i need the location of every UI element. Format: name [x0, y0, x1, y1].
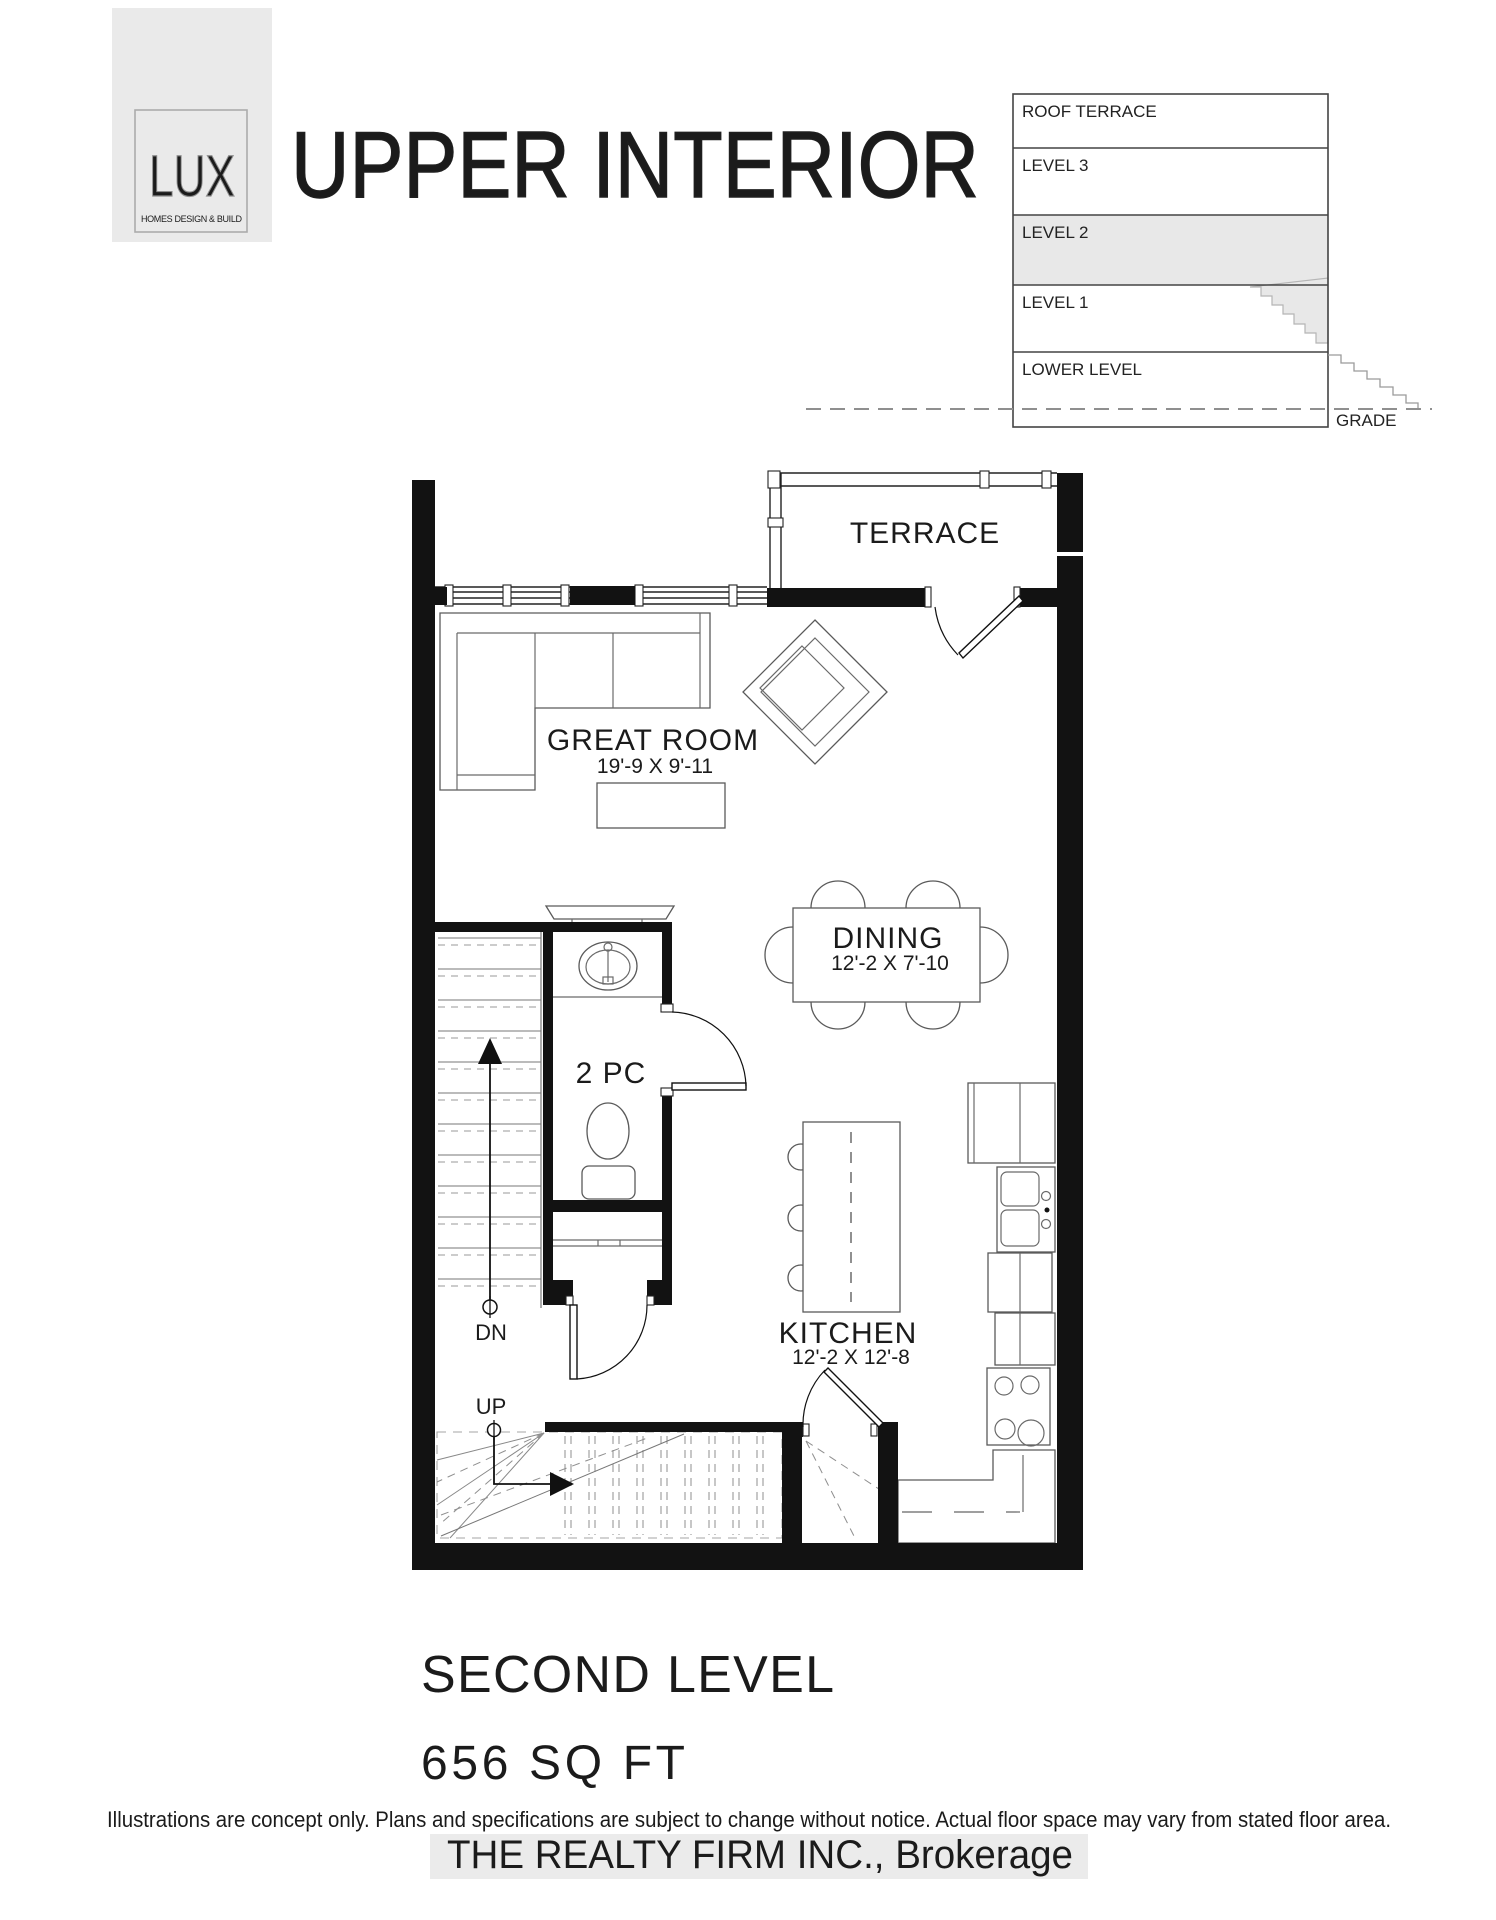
closet-door	[566, 1296, 654, 1379]
kitchen-door	[803, 1368, 883, 1436]
brand-logo: LUX HOMES DESIGN & BUILD	[112, 8, 272, 242]
floorplan-svg: LUX HOMES DESIGN & BUILD UPPER INTERIOR …	[0, 0, 1496, 1920]
logo-text: LUX	[149, 144, 235, 209]
powder-room-label: 2 PC	[576, 1057, 647, 1090]
floor-area: 656 SQ FT	[421, 1737, 685, 1790]
level-3-label: LEVEL 3	[1022, 156, 1088, 175]
disclaimer-text: Illustrations are concept only. Plans an…	[107, 1807, 1391, 1832]
accent-chair	[743, 620, 887, 764]
bathroom-sink	[553, 942, 662, 997]
kitchen-counters	[898, 1083, 1055, 1543]
brokerage-watermark: THE REALTY FIRM INC., Brokerage	[430, 1833, 1088, 1879]
kitchen-dims: 12'-2 X 12'-8	[792, 1346, 910, 1369]
floorplan-page: LUX HOMES DESIGN & BUILD UPPER INTERIOR …	[0, 0, 1496, 1920]
coffee-table	[597, 783, 725, 828]
corner-counter	[898, 1450, 1055, 1543]
fridge	[968, 1083, 1055, 1163]
great-room-label: GREAT ROOM	[547, 724, 759, 757]
kitchen-sink	[997, 1167, 1055, 1252]
level-2-label: LEVEL 2	[1022, 223, 1088, 242]
floor-title: SECOND LEVEL	[421, 1646, 834, 1704]
level-roof-terrace-label: ROOF TERRACE	[1022, 102, 1157, 121]
stairs-down-label: DN	[475, 1320, 507, 1345]
logo-tagline: HOMES DESIGN & BUILD	[141, 214, 243, 224]
floor-plan: TERRACE GREAT ROOM 19'-9 X 9'-11 DINING …	[412, 471, 1083, 1570]
interior-stair-shape	[1250, 278, 1328, 343]
terrace-door	[925, 587, 1023, 658]
footer: SECOND LEVEL 656 SQ FT Illustrations are…	[107, 1646, 1391, 1879]
stairs-upper-run	[438, 932, 541, 1318]
stairs-up-label: UP	[476, 1394, 507, 1419]
bathroom-door	[661, 1004, 746, 1096]
toilet	[582, 1103, 635, 1199]
lower-level-label: LOWER LEVEL	[1022, 360, 1142, 379]
grade-label: GRADE	[1336, 411, 1396, 430]
great-room-dims: 19'-9 X 9'-11	[597, 755, 713, 778]
dining-label: DINING	[833, 922, 944, 955]
exterior-stair-shape	[1328, 355, 1418, 409]
terrace-label: TERRACE	[850, 517, 1000, 550]
watermark-text: THE REALTY FIRM INC., Brokerage	[447, 1833, 1073, 1877]
stairs-lower-run	[437, 1420, 891, 1540]
stove	[987, 1368, 1050, 1446]
page-title: UPPER INTERIOR	[291, 112, 979, 217]
dining-dims: 12'-2 X 7'-10	[831, 952, 949, 975]
kitchen-island	[788, 1122, 900, 1312]
closet-shelf	[553, 1240, 662, 1246]
level-1-label: LEVEL 1	[1022, 293, 1088, 312]
